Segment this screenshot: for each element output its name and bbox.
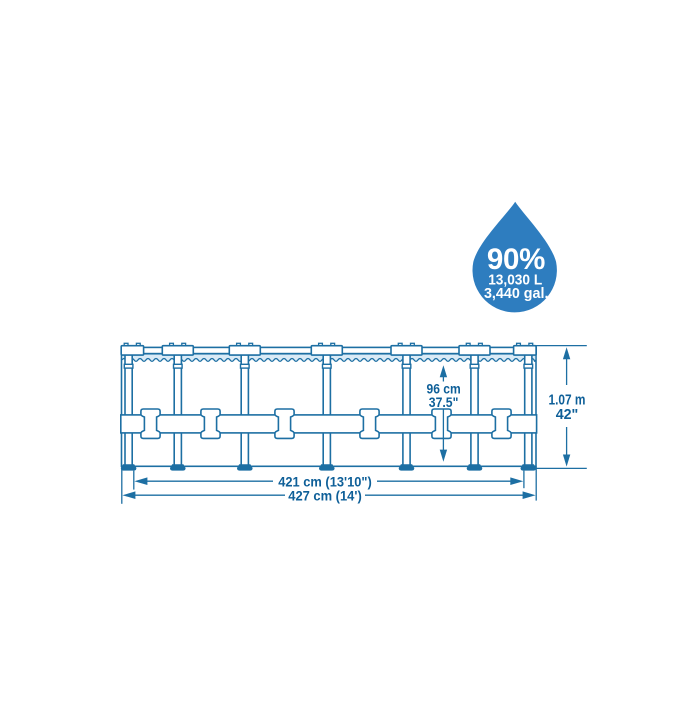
- svg-text:3,440 gal.: 3,440 gal.: [484, 285, 549, 302]
- svg-text:37.5": 37.5": [429, 395, 459, 410]
- svg-text:42": 42": [556, 407, 579, 423]
- svg-text:427 cm (14'): 427 cm (14'): [288, 488, 362, 504]
